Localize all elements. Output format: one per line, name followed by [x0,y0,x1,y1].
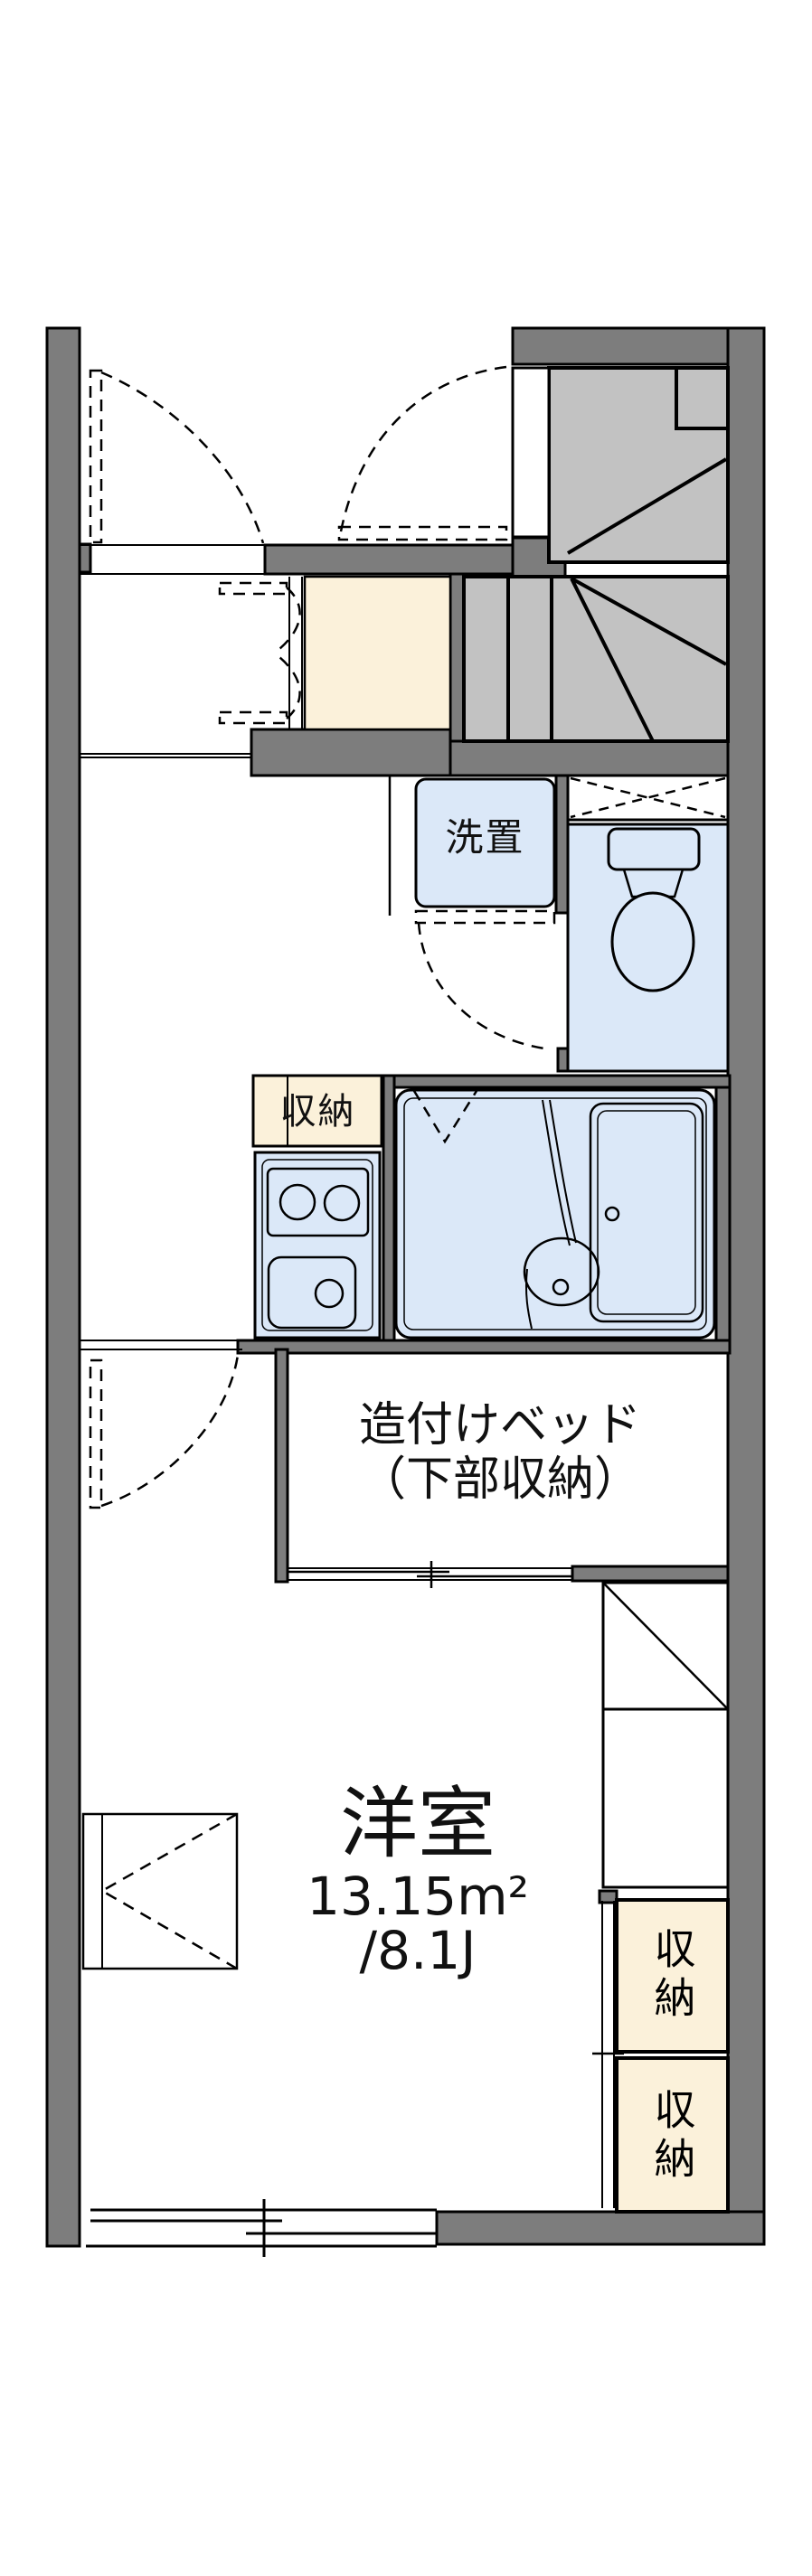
overhead-shelf [568,776,728,820]
western-room-name: 洋室 [340,1779,496,1869]
bathroom [396,1090,714,1338]
genkan [289,577,450,729]
door-leaf-shoe-cabinet-top [220,583,287,594]
kitchen-counter [255,1152,380,1338]
western-room-area-sqm: 13.15m² [264,1870,571,1923]
wall-bottom [437,2212,764,2244]
wall-under-genkan [251,729,450,776]
bed-sliding-door [288,1561,572,1588]
bay-window-unit [83,1814,237,1969]
wall-bath-top [383,1076,730,1087]
genkan-floor [305,577,450,729]
door-arc-upper-hall [101,372,263,543]
wall-top-stair-block [513,328,764,364]
washer-label: 洗置 [416,816,554,860]
western-room-area-jo: /8.1J [264,1924,571,1977]
wall-right [728,328,764,2244]
closet-open-box [603,1709,728,1887]
wall-washer-toilet-divider [556,776,568,913]
wall-entry-stub [80,544,90,572]
wall-under-stairs [450,739,728,776]
wall-left [47,328,80,2246]
stairs-break-notch [676,368,728,428]
kitchen-storage-label: 収納 [254,1091,382,1133]
wall-bath-right [716,1087,730,1340]
wall-stair-left-strip [450,574,464,741]
wall-bath-left [383,1076,394,1353]
built-in-bed-line1: 造付けベッド [359,1398,641,1453]
stairs-lower-flight [464,577,728,741]
door-arc-washer [419,923,551,1049]
door-arc-entrance [341,367,506,531]
wall-bed-left [276,1349,288,1582]
built-in-bed-line2: （下部収納） [359,1453,641,1507]
door-leaf-entrance [339,527,506,540]
wall-entry-band [265,545,513,574]
stairs-side-hall [513,368,549,537]
closet-upper-label: 収納 [617,1900,728,2052]
western-room-label: 洋室 13.15m² /8.1J [264,1785,571,1977]
closet-lower-label: 収納 [617,2060,728,2214]
door-leaf-washer [416,911,554,923]
door-leaf-upper-hall [90,371,101,542]
door-arc-shoe-cabinet [275,588,300,653]
opening-lines [80,545,265,1349]
bottom-window [86,2199,437,2257]
wall-bed-bottom-right [572,1566,728,1581]
toilet-room [568,776,728,1071]
toilet-tank [609,829,699,870]
door-arc-shoe-cabinet [275,653,300,719]
door-arc-corridor [101,1355,238,1506]
toilet-bowl [612,893,694,991]
door-leaf-shoe-cabinet-bottom [220,712,287,723]
door-leaf-corridor [90,1360,101,1508]
built-in-bed-label: 造付けベッド （下部収納） [288,1398,713,1508]
bay-box [83,1814,237,1969]
floorplan: 洗置 収納 造付けベッド （下部収納） 洋室 13.15m² /8.1J 収納 … [0,0,812,2576]
wall-bed-top [238,1340,730,1353]
bath-unit [396,1090,714,1338]
